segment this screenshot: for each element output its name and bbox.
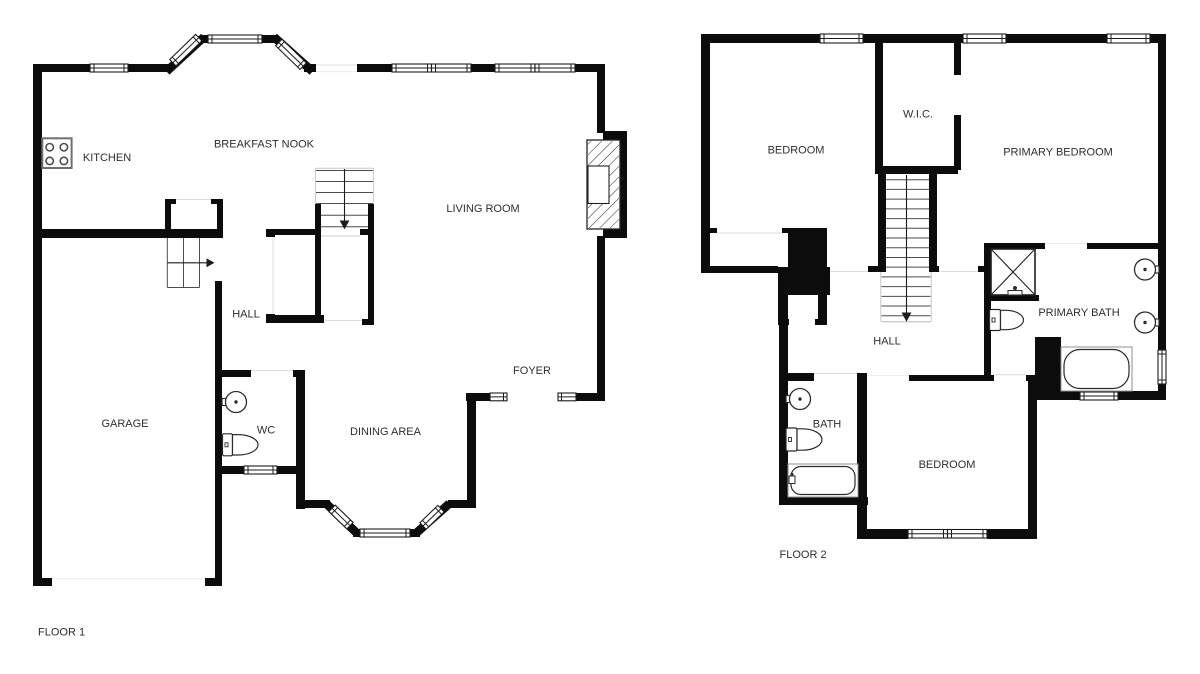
svg-text:FLOOR 2: FLOOR 2 bbox=[780, 549, 827, 561]
svg-text:KITCHEN: KITCHEN bbox=[83, 152, 131, 164]
svg-text:FLOOR 1: FLOOR 1 bbox=[38, 627, 85, 639]
svg-text:BREAKFAST NOOK: BREAKFAST NOOK bbox=[214, 139, 315, 151]
svg-text:GARAGE: GARAGE bbox=[101, 418, 148, 430]
svg-text:HALL: HALL bbox=[232, 309, 260, 321]
svg-text:BEDROOM: BEDROOM bbox=[919, 459, 976, 471]
svg-text:LIVING ROOM: LIVING ROOM bbox=[446, 203, 519, 215]
svg-text:W.I.C.: W.I.C. bbox=[903, 109, 933, 121]
svg-text:BEDROOM: BEDROOM bbox=[768, 145, 825, 157]
svg-text:DINING AREA: DINING AREA bbox=[350, 426, 422, 438]
svg-text:FOYER: FOYER bbox=[513, 365, 551, 377]
svg-text:HALL: HALL bbox=[873, 336, 901, 348]
svg-text:WC: WC bbox=[257, 425, 275, 437]
svg-text:BATH: BATH bbox=[813, 419, 842, 431]
svg-text:PRIMARY BEDROOM: PRIMARY BEDROOM bbox=[1003, 147, 1113, 159]
svg-text:PRIMARY BATH: PRIMARY BATH bbox=[1038, 307, 1119, 319]
